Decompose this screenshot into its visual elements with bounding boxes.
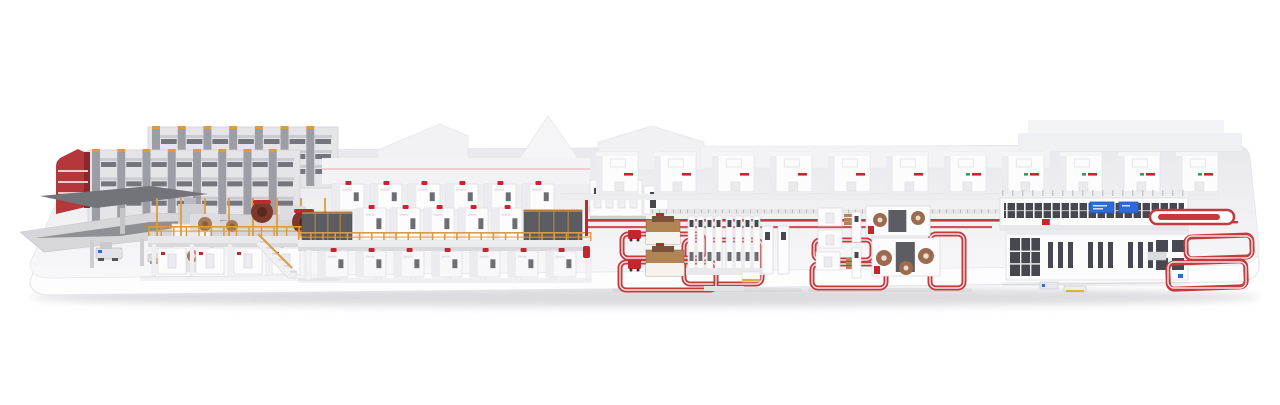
converting-machine-cube bbox=[654, 152, 696, 194]
shelf bbox=[237, 135, 255, 138]
shelf bbox=[314, 150, 332, 153]
shelf bbox=[252, 158, 269, 161]
glass-mullion bbox=[1030, 238, 1031, 276]
rack-column bbox=[218, 152, 226, 222]
ramp-support bbox=[120, 208, 125, 234]
machine-shadow bbox=[1002, 282, 1190, 286]
shelf bbox=[151, 177, 168, 180]
panel bbox=[718, 191, 754, 194]
red-logo-mark bbox=[1088, 173, 1097, 176]
agv-wheel bbox=[98, 258, 104, 261]
bridge-leg bbox=[306, 250, 311, 280]
cube-door bbox=[1137, 182, 1146, 191]
railing-post bbox=[261, 226, 263, 236]
railing-post bbox=[236, 226, 238, 236]
corrugator-module bbox=[546, 248, 576, 277]
pill-belt bbox=[1158, 214, 1220, 220]
railing-post bbox=[590, 232, 592, 241]
red-hydrant bbox=[583, 246, 590, 258]
valve-cap bbox=[559, 248, 565, 252]
roller bbox=[722, 210, 723, 214]
white-label bbox=[1050, 219, 1058, 225]
panel bbox=[302, 212, 352, 214]
red-logo-mark bbox=[624, 173, 633, 176]
panel bbox=[484, 184, 492, 210]
panel bbox=[508, 251, 516, 277]
tower-window bbox=[717, 220, 721, 227]
roll-core bbox=[923, 253, 929, 259]
shelf bbox=[176, 177, 193, 180]
red-unit bbox=[874, 266, 880, 274]
module-vent bbox=[442, 256, 451, 258]
module-vent bbox=[532, 189, 542, 191]
screen-line bbox=[1093, 208, 1103, 210]
module-vent bbox=[404, 256, 413, 258]
valve-cap bbox=[345, 181, 351, 185]
railing-post bbox=[298, 232, 300, 241]
red-mark bbox=[237, 252, 241, 255]
converting-machine-cube bbox=[596, 152, 638, 194]
roll-band bbox=[253, 200, 271, 204]
roller bbox=[708, 210, 709, 214]
orange-cap bbox=[117, 149, 125, 152]
floor-vehicle bbox=[1040, 282, 1058, 289]
sorter-base-band bbox=[1000, 225, 1188, 230]
railing-post bbox=[395, 232, 397, 241]
module-slot bbox=[528, 259, 533, 268]
panel-frame bbox=[315, 212, 317, 240]
roller bbox=[799, 210, 800, 214]
roll-core bbox=[904, 266, 909, 271]
rack-rail bbox=[58, 181, 88, 183]
rack-column bbox=[244, 152, 252, 222]
panel bbox=[886, 152, 892, 194]
panel bbox=[892, 191, 928, 194]
roller bbox=[729, 210, 730, 214]
panel bbox=[470, 251, 478, 277]
roller bbox=[701, 210, 702, 214]
railing-post bbox=[359, 232, 361, 241]
panel bbox=[628, 260, 641, 269]
roller bbox=[764, 210, 765, 214]
machine-core bbox=[888, 210, 906, 232]
stored-roll-slot bbox=[177, 181, 192, 186]
roller bbox=[953, 210, 954, 214]
stored-roll-slot bbox=[227, 162, 242, 167]
rail-post bbox=[1152, 190, 1154, 196]
pallet-unit bbox=[742, 272, 760, 282]
module-slot bbox=[506, 192, 511, 201]
rail-post bbox=[1182, 190, 1184, 196]
rail-post bbox=[1062, 190, 1064, 196]
valve-cap bbox=[471, 205, 477, 209]
tower-slot bbox=[755, 252, 759, 261]
red-mark bbox=[161, 252, 165, 255]
panel bbox=[834, 191, 870, 194]
screen-line bbox=[1122, 205, 1130, 207]
roller bbox=[687, 210, 688, 214]
stored-roll-slot bbox=[290, 139, 306, 144]
module-slot bbox=[566, 259, 571, 268]
roller bbox=[862, 210, 863, 214]
scene-canvas bbox=[0, 0, 1280, 405]
rotary-converting-machine bbox=[866, 206, 930, 236]
railing-post bbox=[161, 226, 163, 236]
orange-cap bbox=[218, 149, 226, 152]
shelf bbox=[314, 135, 332, 138]
corrugator-module bbox=[318, 248, 348, 277]
scaffold-post bbox=[276, 198, 278, 238]
roller bbox=[778, 210, 779, 214]
shelf bbox=[289, 135, 307, 138]
valve-cap bbox=[535, 181, 541, 185]
hall-window bbox=[1156, 240, 1168, 252]
panel bbox=[446, 184, 454, 210]
hall-door-slot bbox=[1058, 242, 1063, 268]
cabinet-door bbox=[826, 213, 834, 223]
shelf bbox=[252, 197, 269, 200]
red-logo-mark bbox=[1146, 173, 1155, 176]
sorter-top-rail bbox=[1000, 194, 1188, 198]
roller bbox=[771, 210, 772, 214]
shelf bbox=[125, 177, 142, 180]
rail-post bbox=[1012, 190, 1014, 196]
panel bbox=[458, 208, 466, 240]
converting-machine-cube bbox=[712, 152, 754, 194]
panel bbox=[944, 152, 950, 194]
railing-post bbox=[444, 232, 446, 241]
cabinet-door bbox=[244, 254, 252, 268]
panel bbox=[1060, 152, 1102, 156]
module-slot bbox=[376, 218, 381, 229]
shelf bbox=[100, 158, 117, 161]
panel bbox=[950, 191, 986, 194]
roller bbox=[743, 210, 744, 214]
valve-cap bbox=[445, 248, 451, 252]
railing-post bbox=[420, 232, 422, 241]
red-logo-mark bbox=[1204, 173, 1213, 176]
rail-post bbox=[1092, 190, 1094, 196]
roller bbox=[652, 210, 653, 214]
support-leg bbox=[152, 244, 156, 276]
cube-door bbox=[963, 182, 972, 191]
valve-cap bbox=[407, 248, 413, 252]
blue-dot bbox=[1178, 274, 1183, 278]
panel bbox=[660, 191, 696, 194]
panel-frame bbox=[340, 212, 342, 240]
roof-slab-upper bbox=[1028, 120, 1224, 133]
hall-glass-section bbox=[1010, 238, 1040, 276]
agv-wheel bbox=[112, 258, 118, 261]
agv-top-unit bbox=[100, 242, 112, 249]
tower-window bbox=[765, 232, 770, 240]
module-slot bbox=[490, 259, 495, 268]
railing-post bbox=[432, 232, 434, 241]
roller bbox=[932, 210, 933, 214]
red-mark bbox=[199, 252, 203, 255]
module-slot bbox=[512, 218, 517, 229]
panel bbox=[356, 251, 364, 277]
stored-roll-slot bbox=[152, 162, 167, 167]
tower-window bbox=[708, 220, 712, 227]
roller bbox=[960, 210, 961, 214]
cube-door bbox=[1021, 182, 1030, 191]
rail-post bbox=[1042, 190, 1044, 196]
shelf bbox=[226, 177, 243, 180]
orange-cap bbox=[92, 149, 100, 152]
panel bbox=[602, 191, 638, 194]
roll-core bbox=[916, 216, 921, 221]
roll bbox=[637, 269, 640, 272]
valve-cap bbox=[437, 205, 443, 209]
module-vent bbox=[456, 189, 466, 191]
tower-slot bbox=[746, 252, 750, 261]
red-logo-mark bbox=[856, 173, 865, 176]
converting-machine-cube bbox=[944, 152, 986, 194]
orange-cap bbox=[143, 149, 151, 152]
panel bbox=[596, 152, 602, 194]
valve-cap bbox=[421, 181, 427, 185]
stacker-towers bbox=[724, 216, 764, 275]
tower-window bbox=[855, 216, 859, 222]
display-screen bbox=[1119, 202, 1138, 213]
module-slot bbox=[452, 259, 457, 268]
module-vent bbox=[480, 256, 489, 258]
roller bbox=[666, 210, 667, 214]
stored-roll-slot bbox=[187, 139, 203, 144]
shelf bbox=[125, 158, 142, 161]
red-tip bbox=[656, 213, 664, 216]
cube-door bbox=[731, 182, 740, 191]
valve-cap bbox=[383, 181, 389, 185]
module-slot bbox=[392, 192, 397, 201]
panel bbox=[1118, 152, 1124, 194]
red-logo-mark bbox=[914, 173, 923, 176]
panel bbox=[828, 152, 870, 156]
railing-post bbox=[554, 232, 556, 241]
cabinet-door bbox=[826, 235, 834, 245]
stored-roll-slot bbox=[161, 139, 177, 144]
scaffold-post bbox=[180, 198, 182, 238]
roller bbox=[995, 210, 996, 214]
converting-machine-cube bbox=[1176, 152, 1218, 194]
corrugator-module bbox=[484, 181, 516, 210]
railing-post bbox=[408, 232, 410, 241]
support-leg bbox=[190, 244, 194, 276]
orange-cap bbox=[281, 126, 289, 129]
orange-cap bbox=[269, 149, 277, 152]
roller bbox=[981, 210, 982, 214]
hall-door-slot bbox=[1068, 242, 1073, 268]
rotary-converting-machine bbox=[872, 238, 940, 276]
valve-cap bbox=[459, 181, 465, 185]
stored-roll-slot bbox=[101, 181, 116, 186]
roller bbox=[946, 210, 947, 214]
rail-post bbox=[1132, 190, 1134, 196]
railing-post bbox=[347, 232, 349, 241]
stored-roll-slot bbox=[253, 162, 268, 167]
roller bbox=[939, 210, 940, 214]
shelf bbox=[186, 135, 204, 138]
splicer-cabinet bbox=[196, 248, 224, 274]
rack-column bbox=[92, 152, 100, 222]
orange-cap bbox=[203, 126, 211, 129]
module-vent bbox=[418, 189, 428, 191]
stored-roll-slot bbox=[278, 162, 293, 167]
corrugator-module bbox=[522, 181, 554, 210]
tower-slot bbox=[737, 252, 741, 261]
tower-slot bbox=[728, 252, 732, 261]
roller bbox=[694, 210, 695, 214]
panel bbox=[424, 208, 432, 240]
panel bbox=[524, 210, 582, 212]
module-vent bbox=[556, 256, 565, 258]
tower-slot bbox=[717, 252, 721, 261]
stored-roll-slot bbox=[264, 139, 280, 144]
converting-machine-cube bbox=[1060, 152, 1102, 194]
roof-slab-lower bbox=[1018, 133, 1242, 151]
panel bbox=[1042, 284, 1045, 287]
shelf bbox=[201, 197, 218, 200]
cube-door bbox=[615, 182, 624, 191]
red-logo-mark bbox=[972, 173, 981, 176]
module-vent bbox=[502, 214, 511, 216]
loop-platform bbox=[1148, 252, 1166, 260]
railing-post bbox=[198, 226, 200, 236]
tower-window bbox=[781, 232, 786, 240]
panel bbox=[1119, 202, 1138, 213]
hall-roof-edge bbox=[1006, 230, 1188, 235]
heating-panel bbox=[524, 210, 582, 240]
railing-post bbox=[273, 226, 275, 236]
panel bbox=[1060, 152, 1066, 194]
production-line-render bbox=[0, 0, 1280, 405]
railing-post bbox=[493, 232, 495, 241]
railing-post bbox=[383, 232, 385, 241]
tower-window bbox=[699, 220, 703, 227]
railing-post bbox=[310, 232, 312, 241]
panel bbox=[628, 230, 641, 239]
valve-cap bbox=[483, 248, 489, 252]
railing-post bbox=[286, 226, 288, 236]
roller bbox=[792, 210, 793, 214]
tower-slot bbox=[708, 252, 712, 261]
rail-post bbox=[1022, 190, 1024, 196]
panel bbox=[646, 232, 680, 244]
stored-roll-slot bbox=[202, 162, 217, 167]
corrugator-module bbox=[470, 248, 500, 277]
panel bbox=[318, 251, 326, 277]
red-logo-mark bbox=[1030, 173, 1039, 176]
module-slot bbox=[354, 192, 359, 201]
module-vent bbox=[366, 256, 375, 258]
tower-slot bbox=[690, 252, 694, 261]
rack-column bbox=[306, 129, 314, 186]
valve-cap bbox=[331, 248, 337, 252]
cube-door bbox=[847, 182, 856, 191]
railing-post bbox=[186, 226, 188, 236]
heating-panel bbox=[302, 212, 352, 240]
panel bbox=[1002, 152, 1008, 194]
shelf bbox=[277, 158, 294, 161]
module-slot bbox=[544, 192, 549, 201]
shelf bbox=[277, 177, 294, 180]
roller bbox=[806, 210, 807, 214]
cube-door bbox=[905, 182, 914, 191]
panel bbox=[654, 152, 660, 194]
stored-roll-slot bbox=[152, 181, 167, 186]
stored-roll-slot bbox=[152, 201, 167, 206]
module-vent bbox=[380, 189, 390, 191]
pallet bbox=[1066, 290, 1084, 292]
panel bbox=[770, 152, 812, 156]
shelf bbox=[263, 135, 281, 138]
converting-machine-cube bbox=[1002, 152, 1044, 194]
rail-post bbox=[1052, 190, 1054, 196]
railing-post bbox=[517, 232, 519, 241]
shelf bbox=[226, 158, 243, 161]
module-slot bbox=[430, 192, 435, 201]
agv-body bbox=[96, 248, 122, 259]
orange-cap bbox=[244, 149, 252, 152]
cube-door bbox=[1079, 182, 1088, 191]
panel bbox=[1066, 191, 1102, 194]
corrugator-module bbox=[458, 205, 488, 240]
panel bbox=[712, 152, 718, 194]
hall-door-slot bbox=[1048, 242, 1053, 268]
module-slot bbox=[338, 259, 343, 268]
roll bbox=[630, 269, 633, 272]
stair-step bbox=[290, 271, 297, 273]
cabinet-door bbox=[206, 254, 214, 268]
panel bbox=[770, 152, 776, 194]
panel bbox=[1176, 152, 1182, 194]
railing-post bbox=[248, 226, 250, 236]
station-roof bbox=[652, 216, 674, 222]
orange-cap bbox=[229, 126, 237, 129]
module-slot bbox=[478, 218, 483, 229]
corrugator-module bbox=[408, 181, 440, 210]
stored-roll-slot bbox=[227, 181, 242, 186]
hall-door-slot bbox=[1098, 242, 1103, 268]
red-logo-mark bbox=[798, 173, 807, 176]
shelf bbox=[252, 177, 269, 180]
corrugator-module bbox=[508, 248, 538, 277]
module-vent bbox=[434, 214, 443, 216]
roller bbox=[785, 210, 786, 214]
rail-post bbox=[1102, 190, 1104, 196]
rail-post bbox=[1072, 190, 1074, 196]
panel bbox=[828, 152, 834, 194]
module-vent bbox=[342, 189, 352, 191]
panel-frame bbox=[568, 210, 570, 240]
display-screen bbox=[1090, 202, 1114, 213]
corrugator-backwall bbox=[322, 158, 590, 184]
panel bbox=[886, 152, 928, 156]
orange-cap bbox=[168, 149, 176, 152]
module-slot bbox=[410, 218, 415, 229]
pallet-shuttle bbox=[1064, 286, 1086, 292]
roll bbox=[257, 207, 267, 217]
valve-cap bbox=[403, 205, 409, 209]
shelf bbox=[211, 135, 229, 138]
valve-cap bbox=[369, 205, 375, 209]
railing-post bbox=[371, 232, 373, 241]
corrugator-module bbox=[370, 181, 402, 210]
converting-machine-cube bbox=[1118, 152, 1160, 194]
railing-post bbox=[148, 226, 150, 236]
stored-roll-slot bbox=[253, 181, 268, 186]
